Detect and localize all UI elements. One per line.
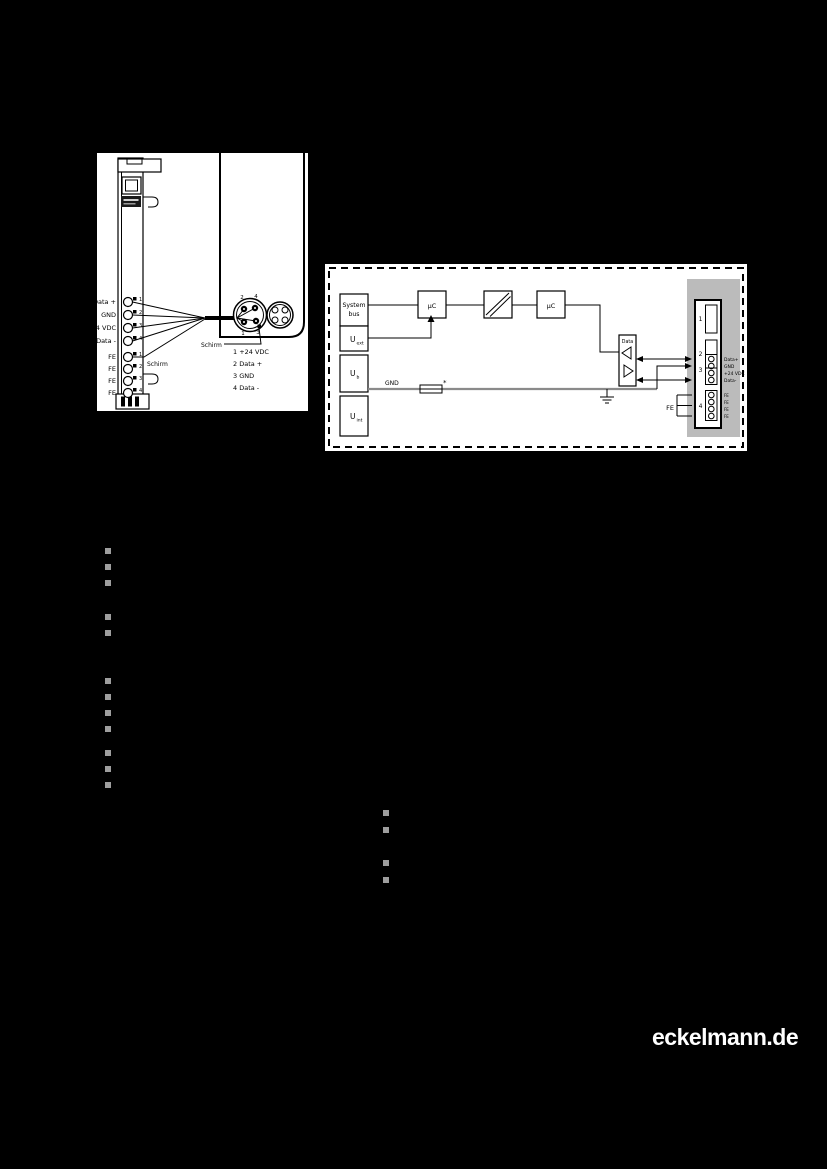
terminal-label-fe: FE	[108, 365, 116, 373]
mount-hook-bottom	[143, 374, 158, 384]
slot-number: 1	[699, 316, 703, 323]
terminal-label-data-minus: Data -	[97, 337, 117, 345]
gnd-label: GND	[385, 380, 399, 387]
shield-label: Schirm	[147, 361, 168, 368]
module-foot	[116, 394, 149, 409]
terminal-label-gnd: GND	[101, 311, 116, 319]
bullet-marker	[105, 766, 111, 772]
u-b-label: U	[350, 369, 356, 378]
u-ext-sub: ext	[357, 341, 364, 347]
terminal-label-fe: FE	[108, 353, 116, 361]
fe-pin-label: FE	[724, 400, 729, 405]
data-box-label: Data	[622, 339, 634, 345]
bullet-marker	[383, 827, 389, 833]
uc2-label: µC	[547, 302, 556, 310]
u-int-label: U	[350, 412, 356, 421]
dashed-border	[329, 268, 743, 447]
bullet-marker	[105, 750, 111, 756]
fe-pin-label: FE	[724, 393, 729, 398]
bullet-marker	[383, 810, 389, 816]
slot-number: 3	[699, 367, 703, 374]
m12-connector-socket	[267, 302, 293, 328]
system-bus-label: bus	[348, 311, 359, 318]
fe-pin-label: FE	[724, 414, 729, 419]
system-bus-label: System	[342, 302, 365, 309]
arrow-left-icon	[636, 356, 643, 362]
block-diagram-figure: 1 2 3 4 Data+ GND +24 VDC Data- FE FE FE…	[325, 264, 747, 451]
terminal-label-data-plus: Data +	[97, 298, 116, 306]
u-b-sub: b	[357, 375, 360, 381]
slot-number: 2	[699, 351, 703, 358]
bullet-marker	[105, 782, 111, 788]
bullet-marker	[383, 860, 389, 866]
arrow-left-icon	[636, 377, 643, 383]
bullet-marker	[105, 564, 111, 570]
bullet-marker	[105, 694, 111, 700]
legend-line: 3 GND	[233, 372, 254, 380]
bullet-marker	[105, 548, 111, 554]
legend-line: 4 Data -	[233, 384, 260, 392]
bullet-marker	[105, 710, 111, 716]
terminal-module	[116, 158, 161, 409]
legend-line: 1 +24 VDC	[233, 348, 269, 356]
fe-pin-label: FE	[724, 407, 729, 412]
gnd-line: * GND	[368, 363, 692, 393]
terminal-number: 3	[139, 323, 142, 329]
shield-label: Schirm	[201, 342, 222, 349]
brand-website: eckelmann.de	[652, 1024, 798, 1051]
document-page: 1 2 3 4 1 2 3 4 Data + GND 24 VDC Data -…	[0, 0, 827, 1169]
slot-number: 4	[699, 403, 703, 410]
bullet-marker	[105, 630, 111, 636]
wiring-diagram-figure: 1 2 3 4 1 2 3 4 Data + GND 24 VDC Data -…	[97, 153, 308, 411]
pin-number: 2	[240, 295, 244, 301]
fe-label: FE	[666, 404, 674, 412]
terminal-number: 3	[139, 376, 142, 382]
data-transceiver: Data	[619, 335, 636, 386]
supply-column: System bus U ext U b U int	[340, 294, 368, 436]
bullet-marker	[383, 877, 389, 883]
terminal-number: 1	[139, 297, 142, 303]
bullet-marker	[105, 614, 111, 620]
module-tag	[121, 196, 141, 207]
pin-label: +24 VDC	[724, 371, 745, 377]
uc1-label: µC	[428, 302, 437, 310]
fuse-footnote: *	[443, 379, 447, 387]
bullet-marker	[105, 678, 111, 684]
pin-number: 4	[254, 294, 258, 300]
earth-ground-icon	[600, 389, 614, 403]
pin-label: Data+	[724, 357, 739, 363]
pin-number: 1	[241, 331, 245, 337]
bullet-marker	[105, 580, 111, 586]
terminal-label-fe: FE	[108, 389, 116, 397]
mount-hook-top	[143, 197, 158, 207]
bullet-marker	[105, 726, 111, 732]
terminal-label-24vdc: 24 VDC	[97, 324, 116, 332]
isolation-box	[484, 291, 512, 318]
u-int-sub: int	[357, 418, 363, 424]
legend-line: 2 Data +	[233, 360, 262, 368]
terminal-label-fe: FE	[108, 377, 116, 385]
terminal-number: 4	[139, 388, 142, 394]
pin-label: GND	[724, 364, 735, 370]
u-ext-label: U	[350, 335, 356, 344]
signal-lines	[368, 305, 692, 383]
pin-label: Data-	[724, 378, 737, 384]
terminal-number: 2	[139, 364, 142, 370]
